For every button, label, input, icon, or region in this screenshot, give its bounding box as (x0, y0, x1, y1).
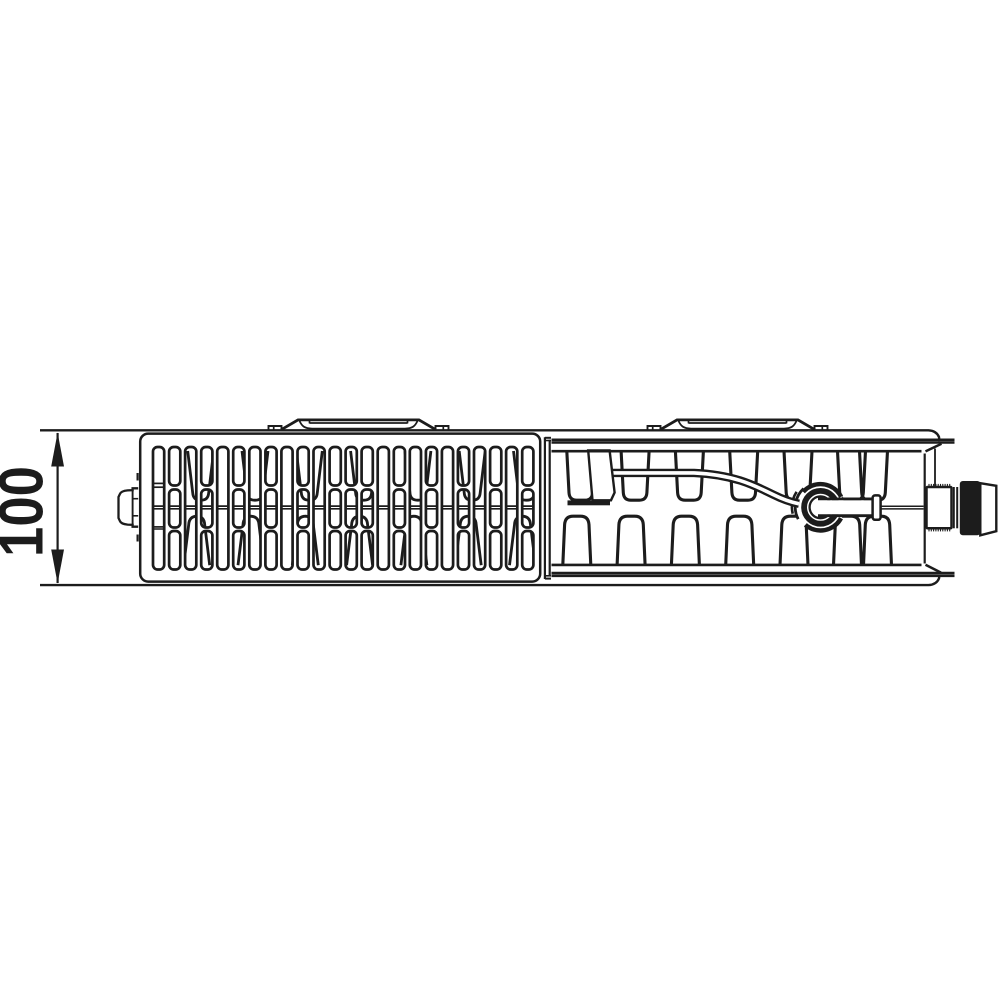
svg-text:100: 100 (0, 466, 57, 557)
